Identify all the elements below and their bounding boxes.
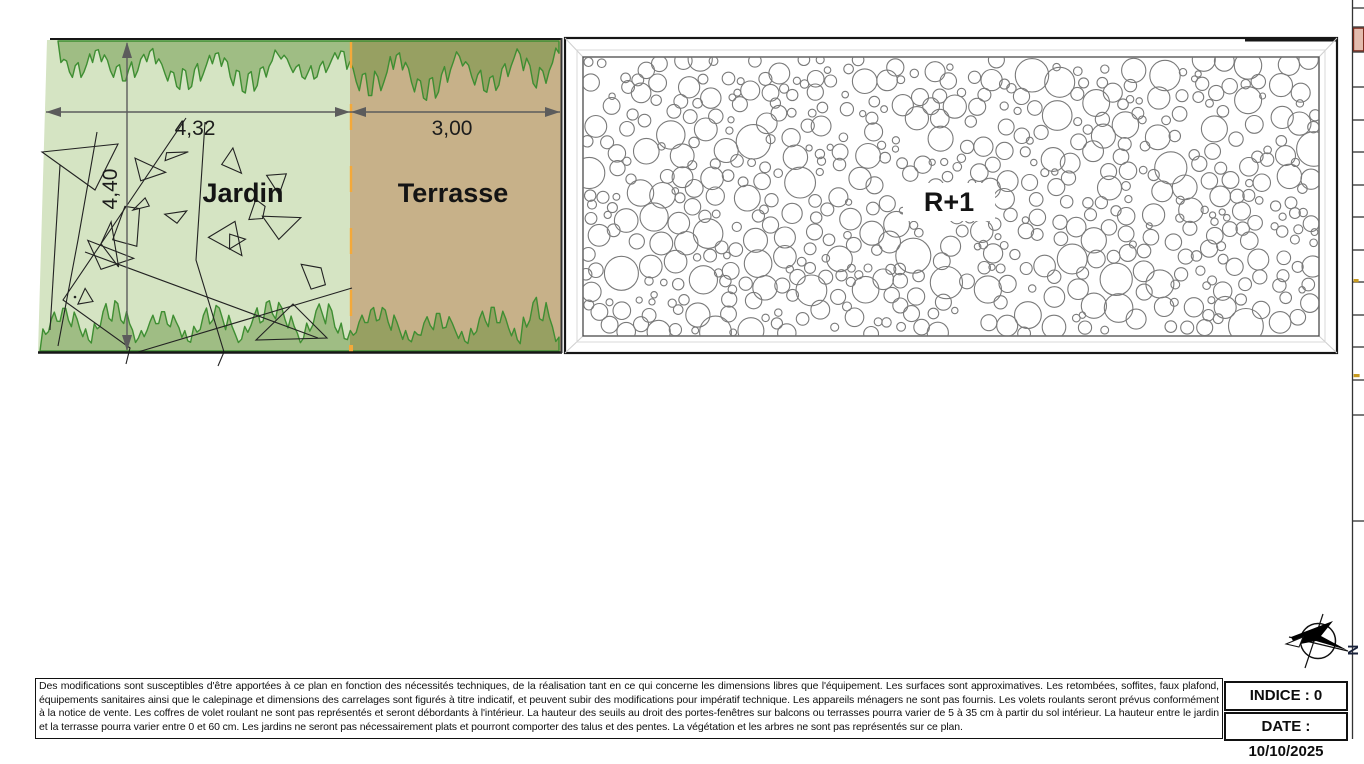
architectural-plan-sheet: Jardin Terrasse 4,32 3,00 4,40 R+1 N Des… [0, 0, 1364, 739]
terrasse-width-dimension: 3,00 [402, 117, 502, 141]
north-arrow-icon [1286, 614, 1348, 668]
terrasse-area-label: Terrasse [378, 178, 528, 209]
date-value: DATE : 10/10/2025 [1224, 712, 1348, 741]
jardin-area-label: Jardin [168, 178, 318, 209]
sheet-edge-strip [1353, 0, 1364, 739]
jardin-depth-dimension: 4,40 [99, 159, 125, 219]
site-plan-drawing [0, 0, 1364, 739]
north-arrow-label: N [1345, 642, 1361, 658]
indice-value: INDICE : 0 [1224, 681, 1348, 711]
building-level-label: R+1 [903, 183, 995, 221]
jardin-width-dimension: 4,32 [145, 117, 245, 141]
disclaimer-text: Des modifications sont susceptibles d'êt… [35, 678, 1223, 739]
